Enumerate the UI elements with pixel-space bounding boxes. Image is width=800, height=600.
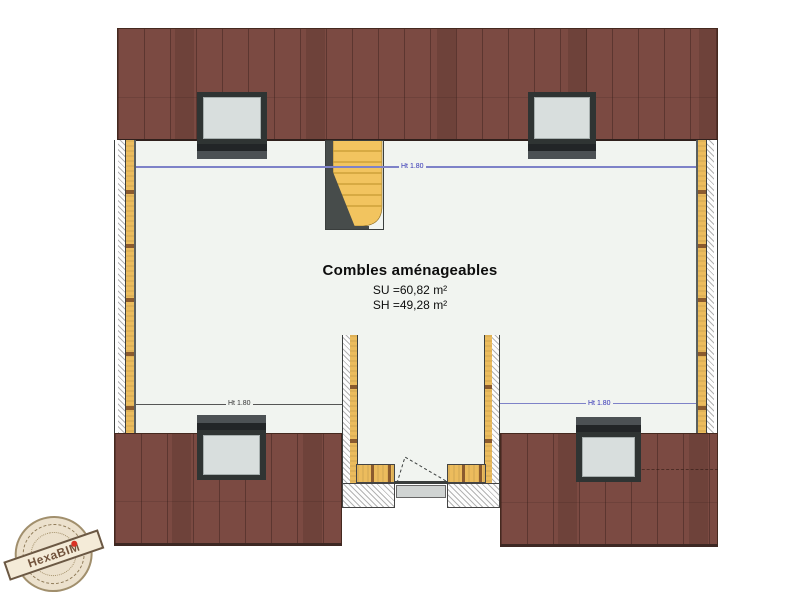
wall-left-inner-face — [134, 140, 136, 433]
skylight-glass — [582, 437, 635, 477]
height-line-bottom-left-label: Ht 1.80 — [226, 399, 253, 408]
skylight-glass — [203, 435, 260, 475]
skylight-top-right — [528, 92, 596, 159]
skylight-flashing-bar — [197, 151, 267, 159]
entry-door-step — [396, 485, 446, 498]
skylight-top-left — [197, 92, 267, 159]
room-label: Combles aménageables SU =60,82 m² SH =49… — [298, 262, 522, 313]
floor-plan-canvas: Ht 1.80 Ht 1.80 Ht 1.80 Combles aménagea… — [0, 0, 800, 600]
dormer-sill-left — [356, 464, 395, 483]
wall-left — [114, 140, 136, 433]
dormer-bottom-wall-left — [342, 483, 395, 508]
skylight-flashing-bar — [197, 144, 267, 151]
room-habitable-area: SH =49,28 m² — [298, 298, 522, 313]
skylight-frame — [197, 430, 266, 480]
roof-ridge-dash-line — [632, 469, 718, 470]
skylight-flashing-bar — [576, 417, 641, 425]
skylight-bottom-right — [576, 417, 641, 482]
wall-right-insulation — [698, 140, 706, 433]
wall-right-hatch — [707, 140, 714, 433]
wall-right-outline — [717, 140, 718, 433]
skylight-flashing-bar — [197, 423, 266, 430]
wall-right — [696, 140, 718, 433]
skylight-frame — [528, 92, 596, 144]
skylight-flashing-bar — [528, 151, 596, 159]
room-usable-area: SU =60,82 m² — [298, 283, 522, 298]
height-line-bottom-right-label: Ht 1.80 — [586, 399, 613, 408]
dormer-sill-right — [447, 464, 486, 483]
height-line-top-label: Ht 1.80 — [399, 162, 426, 171]
skylight-flashing-bar — [197, 415, 266, 423]
skylight-bottom-left — [197, 415, 266, 480]
wall-left-insulation — [126, 140, 134, 433]
skylight-frame — [197, 92, 267, 144]
stair-side-stringer — [325, 140, 333, 229]
room-title: Combles aménageables — [298, 262, 522, 279]
skylight-glass — [203, 97, 261, 139]
skylight-flashing-bar — [576, 425, 641, 432]
hexabim-stamp: HexaBIM — [1, 507, 106, 600]
skylight-glass — [534, 97, 590, 139]
wall-left-hatch — [118, 140, 125, 433]
entry-door-swing — [394, 455, 448, 485]
staircase — [325, 140, 385, 231]
skylight-frame — [576, 432, 641, 482]
stair-bottom-edge — [325, 226, 369, 230]
skylight-flashing-bar — [528, 144, 596, 151]
dormer-bottom-wall-right — [447, 483, 500, 508]
